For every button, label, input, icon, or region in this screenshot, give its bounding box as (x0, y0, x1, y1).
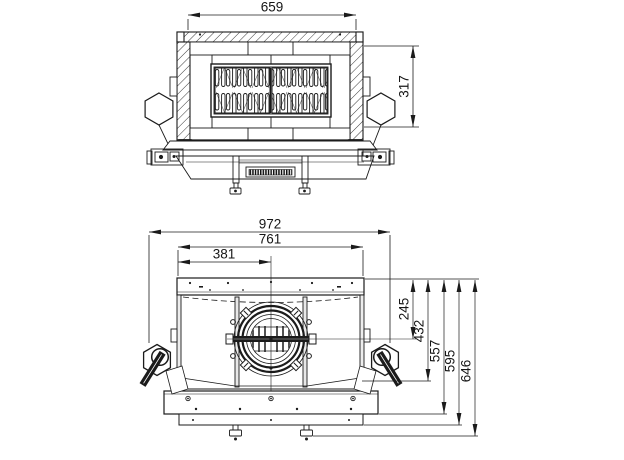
front-ledge (164, 391, 378, 425)
front-right-wall (350, 42, 363, 140)
air-grate-left-panel (215, 68, 270, 113)
left-hex-knob (145, 93, 173, 148)
dim-front-height-label: 317 (397, 75, 412, 98)
dim-inner-width: 761 (178, 232, 363, 277)
plan-right-foot (301, 425, 313, 441)
dim-inner-width-label: 761 (259, 232, 282, 247)
drawing-canvas: 659 317 (0, 0, 624, 460)
dim-depth-4-label: 595 (443, 350, 458, 373)
base-assembly (147, 140, 394, 194)
technical-drawing: 659 317 (0, 0, 624, 460)
dim-depth-3-label: 557 (428, 340, 443, 363)
front-left-wall (177, 42, 190, 140)
plan-view: 972 761 381 245 432 557 (140, 217, 479, 441)
dim-front-width: 659 (188, 0, 356, 30)
plan-left-side-tab (171, 329, 177, 342)
front-top-band (177, 32, 363, 42)
plan-right-side-tab (364, 329, 370, 342)
plan-back-panel (177, 278, 364, 295)
dim-overall-width-label: 972 (259, 217, 282, 232)
dim-flue-offset: 381 (178, 247, 271, 263)
front-right-side-tab (363, 77, 370, 96)
ash-grille (246, 167, 295, 177)
dim-flue-offset-label: 381 (213, 247, 236, 262)
dim-depth-2-label: 432 (412, 320, 427, 343)
dim-depth-5-label: 646 (459, 360, 474, 383)
front-left-foot (230, 183, 241, 194)
air-grate (211, 64, 331, 117)
plan-left-foot (230, 425, 242, 441)
front-view: 659 317 (145, 0, 419, 194)
air-grate-right-panel (272, 68, 327, 113)
front-left-side-tab (170, 77, 177, 96)
right-hex-knob (367, 93, 395, 148)
front-right-foot (299, 183, 310, 194)
dim-depth-1-label: 245 (397, 298, 412, 321)
dim-front-width-label: 659 (261, 0, 284, 15)
